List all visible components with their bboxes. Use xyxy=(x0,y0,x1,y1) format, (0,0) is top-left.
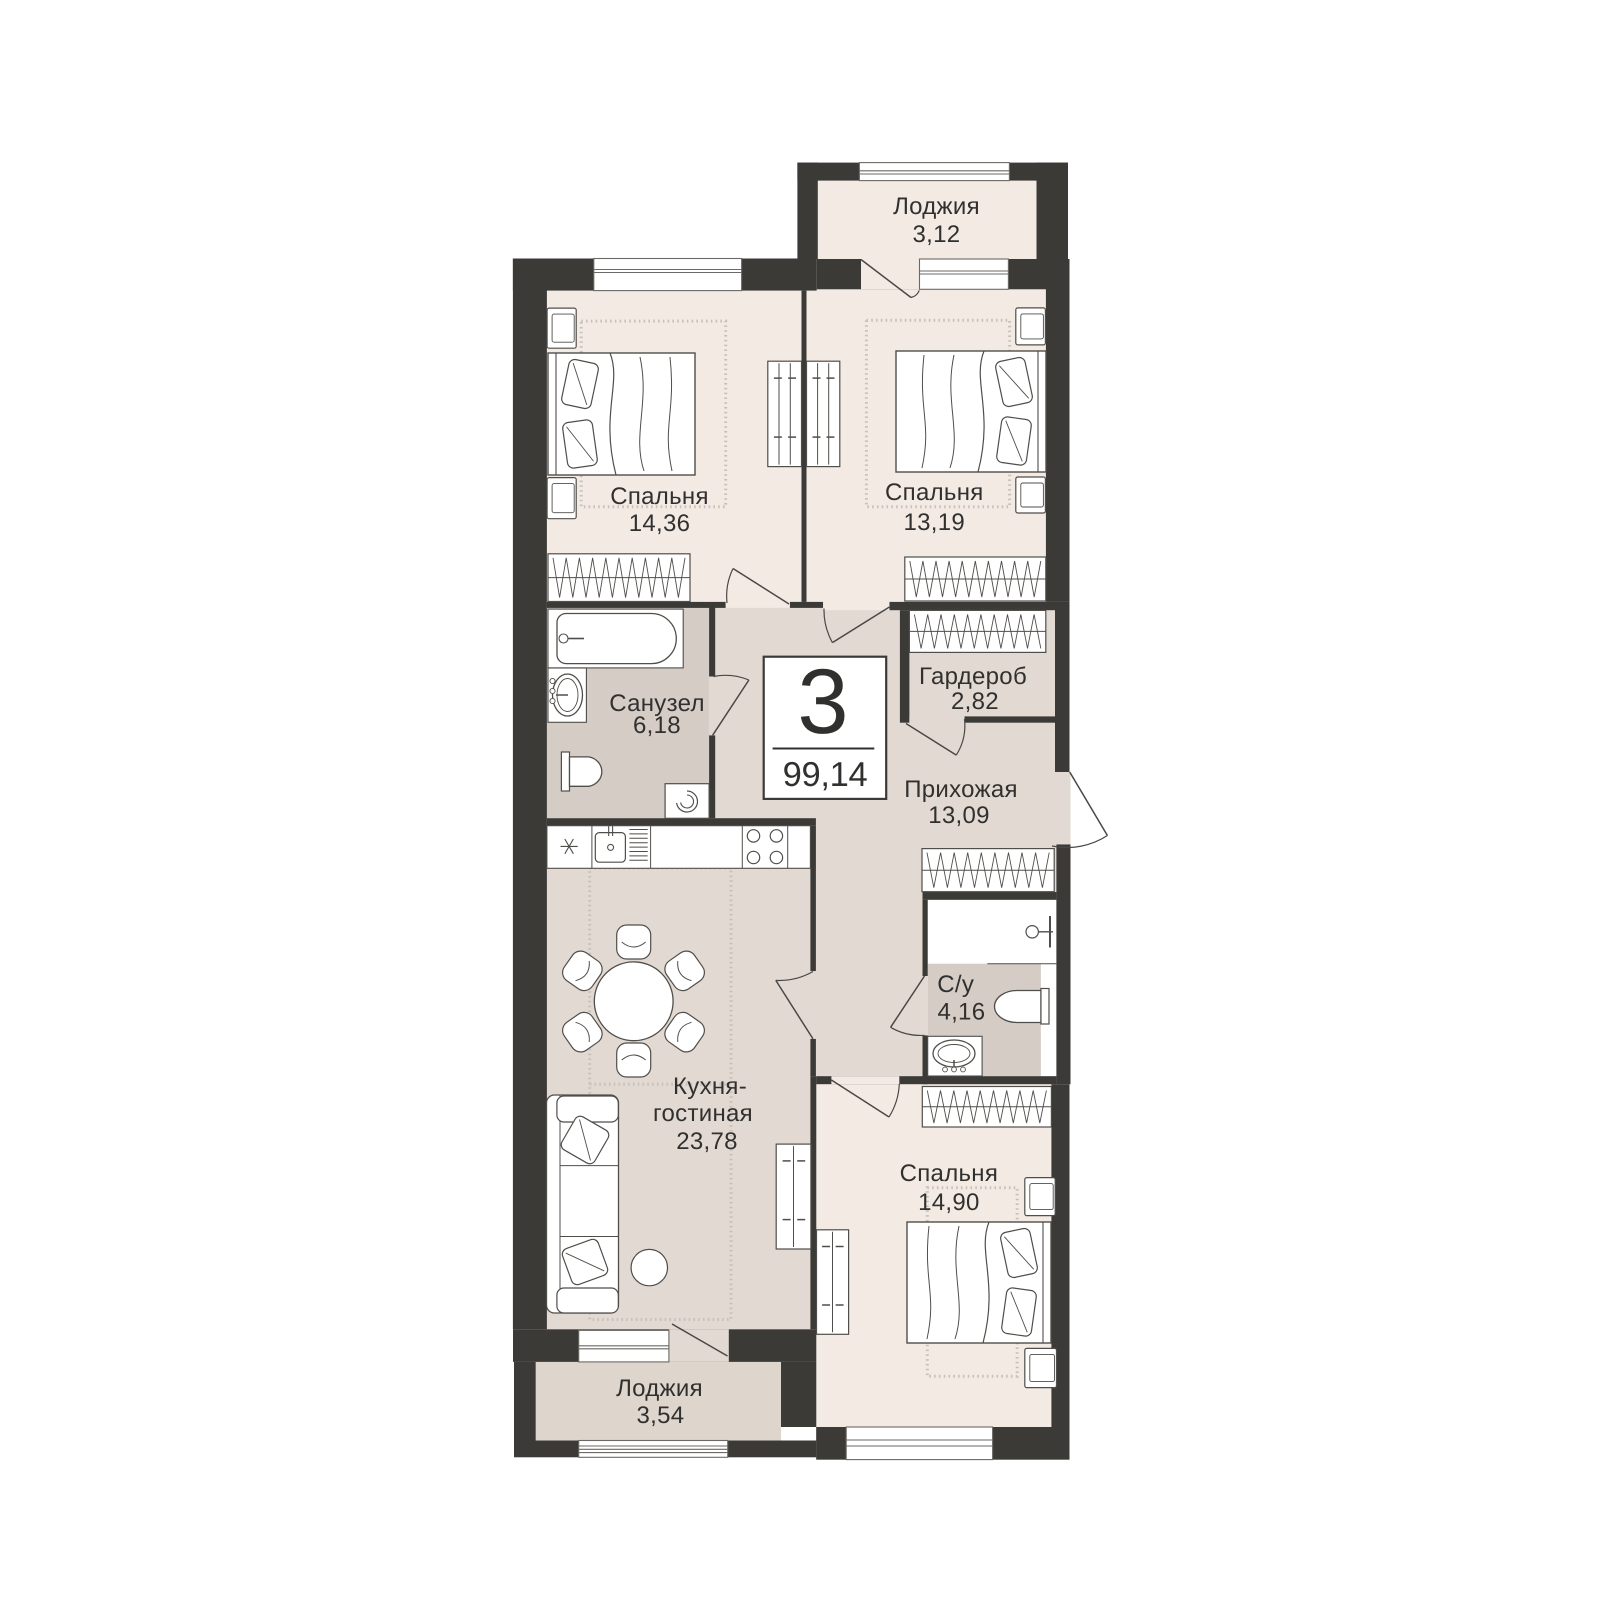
svg-text:99,14: 99,14 xyxy=(783,756,868,794)
svg-text:14,90: 14,90 xyxy=(918,1189,980,1216)
svg-text:14,36: 14,36 xyxy=(629,510,691,537)
svg-text:Спальня: Спальня xyxy=(610,483,709,510)
svg-text:4,16: 4,16 xyxy=(937,999,985,1026)
svg-text:3,54: 3,54 xyxy=(637,1402,685,1429)
svg-text:Кухня-: Кухня- xyxy=(673,1073,747,1100)
svg-text:13,09: 13,09 xyxy=(928,802,990,829)
svg-text:гостиная: гостиная xyxy=(653,1100,753,1127)
svg-text:Лоджия: Лоджия xyxy=(893,193,980,220)
svg-text:13,19: 13,19 xyxy=(904,509,966,536)
svg-text:6,18: 6,18 xyxy=(633,712,681,739)
svg-text:Гардероб: Гардероб xyxy=(919,663,1027,690)
svg-text:3,12: 3,12 xyxy=(913,221,961,248)
svg-text:3: 3 xyxy=(797,651,848,753)
svg-text:23,78: 23,78 xyxy=(676,1128,738,1155)
svg-text:С/у: С/у xyxy=(937,971,974,998)
svg-text:Прихожая: Прихожая xyxy=(904,776,1018,803)
svg-text:Лоджия: Лоджия xyxy=(616,1375,703,1402)
svg-text:Спальня: Спальня xyxy=(885,479,984,506)
svg-text:2,82: 2,82 xyxy=(951,688,999,715)
svg-text:Спальня: Спальня xyxy=(900,1160,999,1187)
